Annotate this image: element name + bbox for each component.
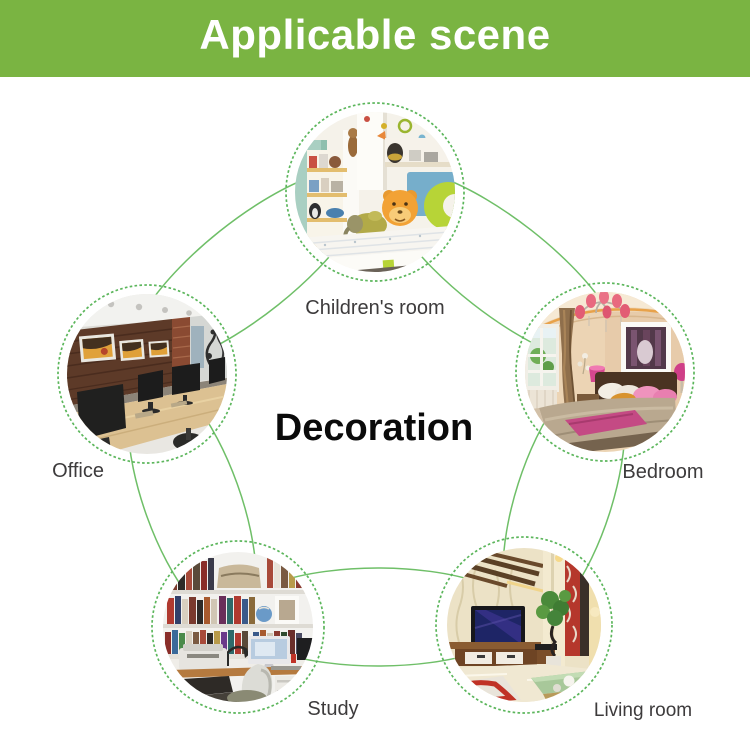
svg-text:Living room: Living room <box>594 700 692 721</box>
svg-text:Bedroom: Bedroom <box>622 461 703 483</box>
svg-text:Decoration: Decoration <box>275 407 473 449</box>
svg-text:Office: Office <box>52 460 104 482</box>
svg-text:Children's room: Children's room <box>305 297 444 319</box>
svg-text:Study: Study <box>307 698 358 720</box>
svg-text:Applicable scene: Applicable scene <box>199 11 550 58</box>
